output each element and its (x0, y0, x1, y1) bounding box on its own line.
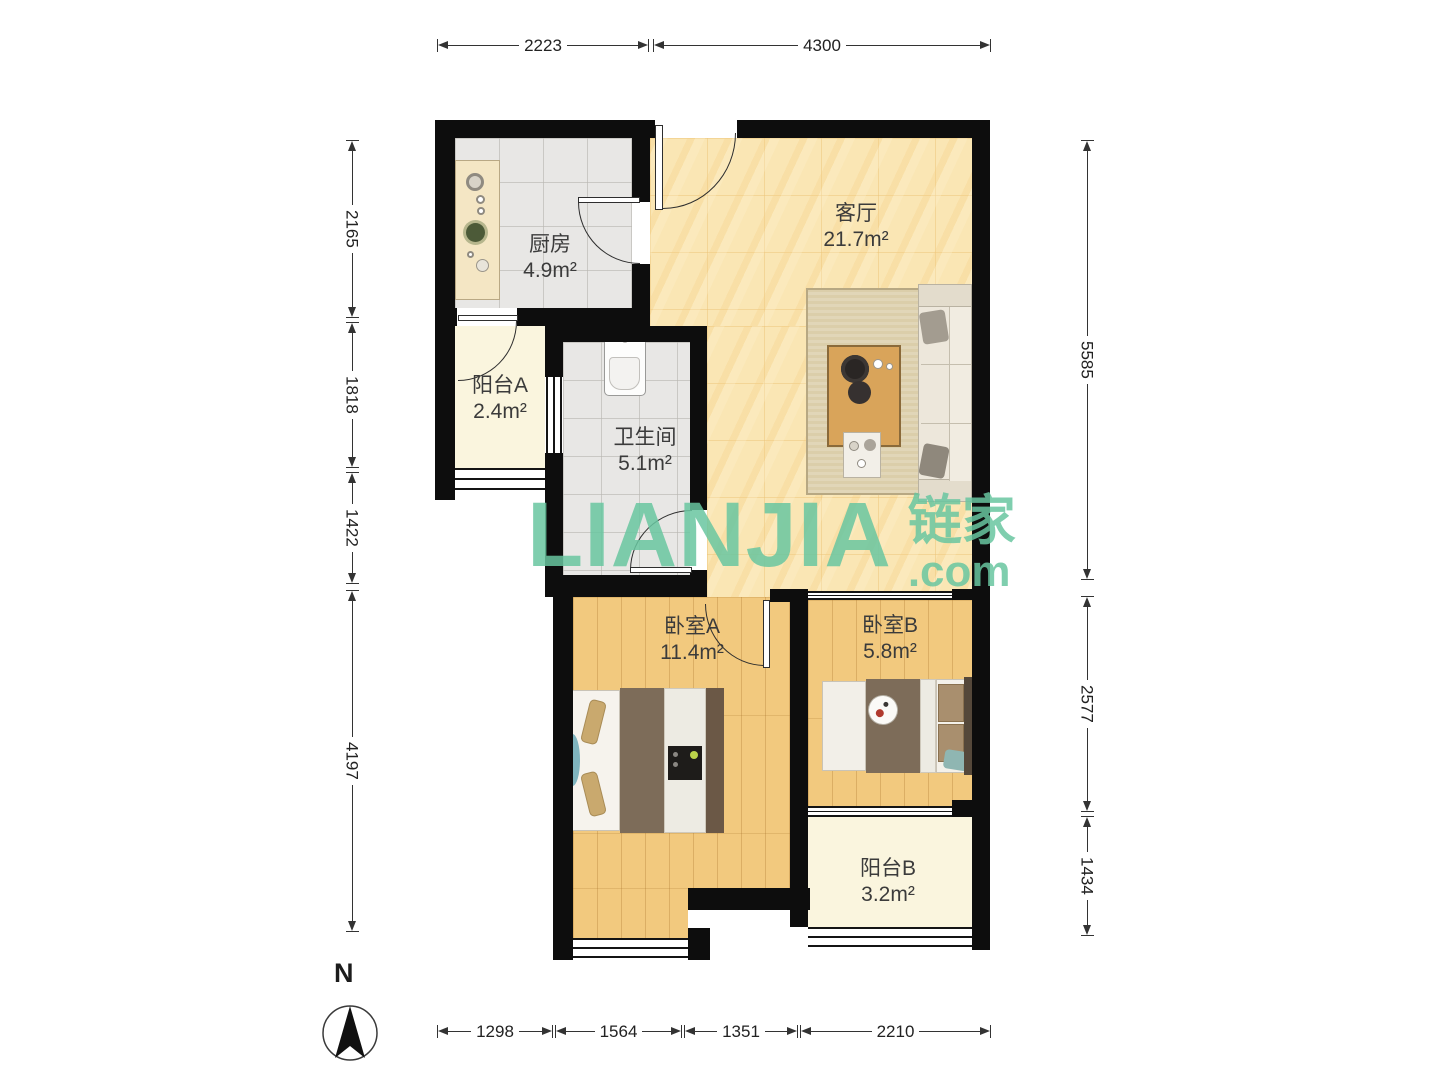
kitchen-knob-icon (476, 195, 485, 204)
bed-a-footboard (706, 688, 724, 833)
dim-value: 5585 (1079, 336, 1096, 384)
dim-right-5585: 5585 (1078, 140, 1096, 580)
sofa-pillow-top (919, 309, 950, 345)
room-name: 阳台B (818, 856, 958, 882)
room-label-bathroom: 卫生间 5.1m² (585, 425, 705, 477)
dim-right-2577: 2577 (1078, 596, 1096, 812)
dim-value: 4197 (344, 737, 361, 785)
dim-bottom-1298: 1298 (437, 1022, 553, 1040)
bed-a-tray (668, 746, 702, 780)
bed-a-tray-dot-icon (690, 751, 698, 759)
wall-kitchen-left (435, 120, 455, 326)
dim-left-1818: 1818 (343, 322, 361, 468)
coffee-table (827, 345, 901, 447)
room-area: 5.8m² (820, 639, 960, 665)
room-area: 4.9m² (490, 258, 610, 284)
table-bowl-icon (848, 381, 871, 404)
sofa-armrest-top (919, 285, 971, 307)
wall-kitchen-top (435, 120, 655, 138)
room-area: 11.4m² (612, 640, 772, 666)
dim-right-1434: 1434 (1078, 816, 1096, 936)
dim-left-1422: 1422 (343, 472, 361, 584)
dim-value: 2210 (872, 1023, 920, 1040)
bedroom-a-window (573, 938, 688, 958)
dim-bottom-2210: 2210 (800, 1022, 991, 1040)
dim-left-4197: 4197 (343, 590, 361, 932)
wall-bedroom-a-bottom-right (688, 928, 710, 960)
dim-value: 2577 (1079, 680, 1096, 728)
bathroom-fixture-basin (609, 357, 640, 390)
dim-value: 2223 (519, 37, 567, 54)
dim-value: 2165 (344, 205, 361, 253)
tray-item-icon (849, 441, 859, 451)
bedroom-b-balcony-slider (808, 806, 952, 817)
wall-bathroom-left-upper (545, 326, 563, 377)
wall-bedroom-a-bottom-left (553, 930, 573, 960)
dim-value: 1818 (344, 371, 361, 419)
watermark-latin: LIANJIA (527, 490, 892, 580)
room-label-balcony-b: 阳台B 3.2m² (818, 856, 958, 908)
balcony-a-door-leaf (458, 315, 518, 321)
entry-door-leaf (655, 125, 663, 210)
wall-notch-top (688, 888, 810, 910)
dim-value: 4300 (798, 37, 846, 54)
dim-value: 1298 (471, 1023, 519, 1040)
bed-a-duvet (620, 688, 664, 833)
kitchen-door-leaf (578, 197, 640, 203)
balcony-b-window (808, 927, 972, 947)
compass-icon (314, 960, 386, 1075)
wall-bedroom-b-left (790, 589, 808, 927)
room-area: 2.4m² (440, 399, 560, 425)
kitchen-plant-icon (466, 223, 485, 242)
dim-value: 1422 (344, 504, 361, 552)
bedroom-a-floor-lower (573, 888, 688, 938)
table-cup-icon (873, 359, 883, 369)
room-label-bedroom-b: 卧室B 5.8m² (820, 613, 960, 665)
wall-bedroom-a-left (553, 597, 573, 960)
room-name: 卧室B (820, 613, 960, 639)
room-name: 客厅 (786, 201, 926, 227)
dim-top-2223: 2223 (437, 36, 649, 54)
room-name: 卧室A (612, 614, 772, 640)
room-area: 3.2m² (818, 882, 958, 908)
watermark-com: .com (908, 548, 1016, 596)
kitchen-basin-icon (476, 259, 489, 272)
tray-item2-icon (864, 439, 876, 451)
room-name: 卫生间 (585, 425, 705, 451)
dim-value: 1434 (1079, 852, 1096, 900)
bed-b-duvet (866, 679, 920, 773)
watermark-cn: 链家 (908, 494, 1016, 548)
wall-balcony-a-corner (435, 459, 455, 500)
bed-a-tray-dot2-icon (673, 752, 678, 757)
room-label-living: 客厅 21.7m² (786, 201, 926, 253)
room-label-bedroom-a: 卧室A 11.4m² (612, 614, 772, 666)
room-name: 厨房 (490, 232, 610, 258)
dim-top-4300: 4300 (653, 36, 991, 54)
sofa (918, 284, 972, 502)
wall-kitchen-living-upper (632, 138, 650, 202)
sofa-back-cushions (949, 307, 971, 481)
dim-value: 1351 (717, 1023, 765, 1040)
floorplan-canvas: 厨房 4.9m² 客厅 21.7m² 阳台A 2.4m² 卫生间 5.1m² 卧… (0, 0, 1440, 1080)
lianjia-watermark: LIANJIA 链家 .com (527, 490, 1016, 596)
room-area: 5.1m² (585, 451, 705, 477)
tray-item3-icon (857, 459, 866, 468)
table-cup2-icon (886, 363, 893, 370)
wall-bathroom-right-upper (690, 326, 707, 510)
bed-b-fold (920, 679, 936, 773)
bedroom-b-bed (818, 677, 986, 775)
dim-bottom-1351: 1351 (684, 1022, 798, 1040)
wall-living-top (737, 120, 990, 138)
wall-kitchen-bottom-right (517, 308, 650, 326)
wall-bathroom-top (563, 326, 707, 342)
bedroom-a-bed (562, 688, 724, 833)
bed-b-pillow (822, 681, 866, 771)
dim-left-2165: 2165 (343, 140, 361, 318)
wall-kitchen-bottom-left (435, 308, 457, 326)
kitchen-sink-icon (466, 173, 484, 191)
bed-b-blanket-1 (938, 684, 964, 722)
dim-value: 1564 (595, 1023, 643, 1040)
room-name: 阳台A (440, 373, 560, 399)
table-pot-icon (841, 355, 869, 383)
room-area: 21.7m² (786, 227, 926, 253)
room-label-kitchen: 厨房 4.9m² (490, 232, 610, 284)
kitchen-knob2-icon (477, 207, 485, 215)
kitchen-faucet-icon (467, 251, 474, 258)
bed-a-tray-dot3-icon (673, 762, 678, 767)
wall-kitchen-living-lower (632, 264, 650, 326)
wall-balcony-b-top-nub (952, 800, 972, 817)
table-tray (843, 432, 881, 478)
dim-bottom-1564: 1564 (555, 1022, 682, 1040)
room-label-balcony-a: 阳台A 2.4m² (440, 373, 560, 425)
